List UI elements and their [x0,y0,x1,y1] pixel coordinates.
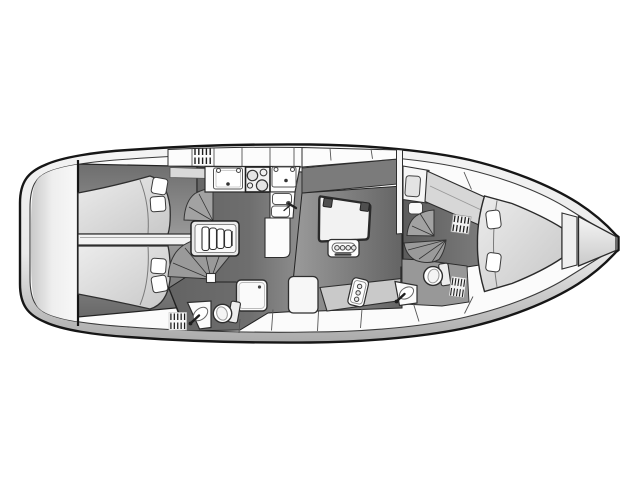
stove-knob [260,169,267,176]
v-berth-pillow [485,210,501,230]
ladder-step [217,229,224,249]
galley-counter-leg-lower [265,218,290,258]
chain-locker-bulkhead [562,213,577,269]
deck-plan-svg [0,0,640,480]
galley-sink-right [272,167,296,187]
aft-berth-beam [78,234,197,245]
step-stool [409,203,423,215]
aft-berth-pillow [150,258,166,274]
door-hinge-post [207,274,216,283]
shower-drain [258,285,261,288]
galley-lockers [168,147,302,167]
vanity-sink [395,282,417,306]
ladder-step [210,228,217,250]
shower-pan [237,280,268,311]
ladder-step [202,227,209,251]
stove-burner [256,180,267,191]
bottle-holder [328,240,359,258]
shower-grate-icon [449,276,467,298]
aft-berth-pillow [150,196,166,212]
forward-bulkhead [397,150,403,235]
v-berth-pillow [485,252,501,272]
forward-vent-grate-icon [451,214,471,234]
galley-sink-left [214,168,243,189]
yacht-deck-plan-figure [0,0,640,480]
salon-seat [289,277,319,314]
table-hinge [360,202,370,212]
aft-berth-pillow [151,177,169,195]
seat-cushion [405,176,421,197]
companionway-ladder [191,221,239,256]
aft-berth-pillow [151,275,169,293]
aft-head-grate-icon [169,313,187,331]
ladder-step [225,230,232,248]
transom-platform [31,160,78,326]
table-hinge [323,198,333,208]
galley-stove [246,167,271,192]
stove-burner [247,170,257,180]
stove-knob [247,183,252,188]
